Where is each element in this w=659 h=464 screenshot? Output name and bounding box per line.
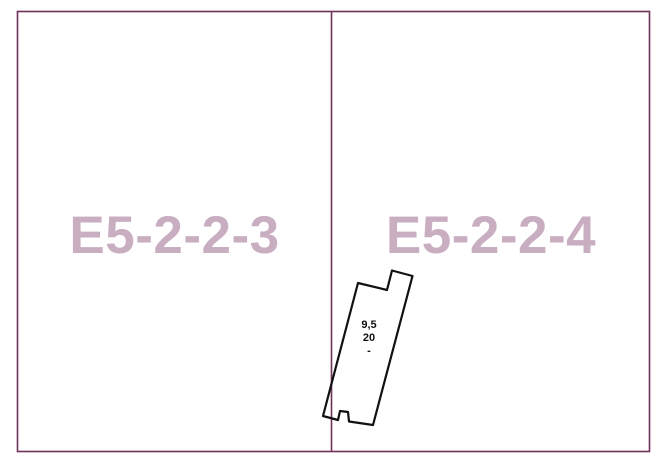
plot-dimensions: 9,5 20 - <box>338 319 400 358</box>
zone-label-right: E5-2-2-4 <box>332 206 650 264</box>
plot-dimension-line-2: 20 <box>338 332 400 345</box>
plot-map: E5-2-2-3 E5-2-2-4 9,5 20 - <box>0 0 659 464</box>
plot-dimension-line-1: 9,5 <box>338 319 400 332</box>
zone-label-left: E5-2-2-3 <box>17 206 332 264</box>
plot-dimension-line-3: - <box>338 345 400 358</box>
